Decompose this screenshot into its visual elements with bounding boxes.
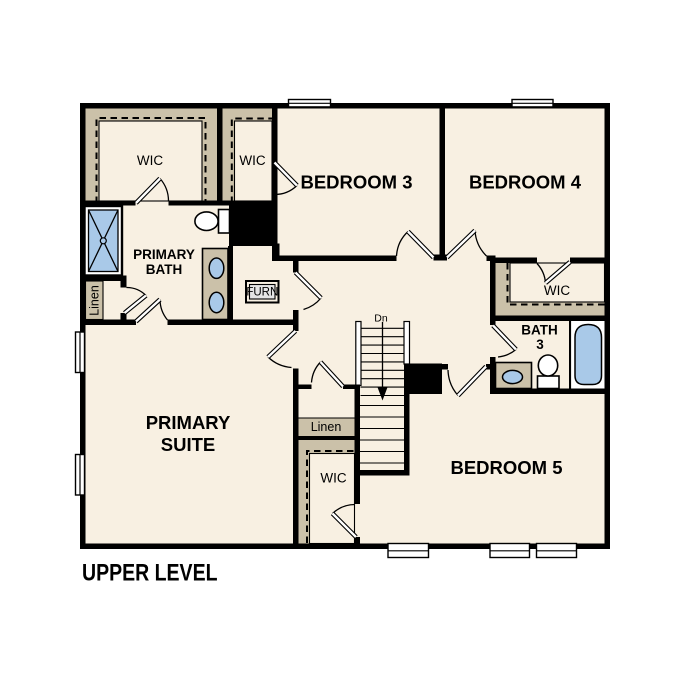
svg-text:PRIMARY: PRIMARY [133,247,195,262]
svg-text:Dn: Dn [374,313,388,325]
svg-text:BEDROOM 5: BEDROOM 5 [450,457,562,478]
svg-text:SUITE: SUITE [161,434,215,455]
svg-text:WIC: WIC [137,153,163,168]
svg-text:Linen: Linen [88,285,102,316]
svg-text:WIC: WIC [544,283,570,298]
svg-text:WIC: WIC [320,471,346,486]
svg-text:PRIMARY: PRIMARY [146,412,231,433]
svg-text:WIC: WIC [239,153,265,168]
svg-text:FURN: FURN [246,286,278,298]
svg-text:Linen: Linen [311,420,342,434]
svg-text:BATH: BATH [146,262,183,277]
svg-text:BATH: BATH [521,323,558,338]
svg-text:UPPER LEVEL: UPPER LEVEL [82,560,218,587]
svg-text:3: 3 [536,337,544,352]
svg-text:BEDROOM 4: BEDROOM 4 [469,172,582,193]
svg-text:BEDROOM 3: BEDROOM 3 [300,172,412,193]
